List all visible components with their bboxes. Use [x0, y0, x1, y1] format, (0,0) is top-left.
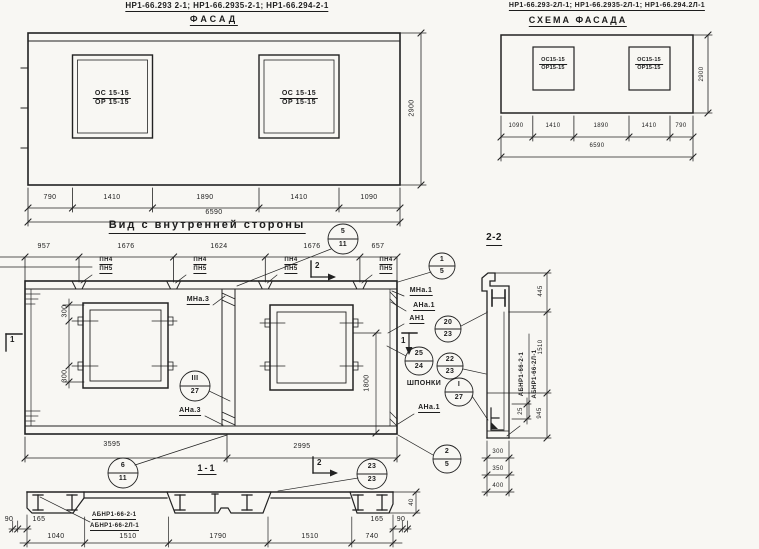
callout-num: 23 [368, 463, 377, 470]
dim-label: 165 [33, 516, 46, 523]
dim-label: 1510 [119, 533, 136, 540]
callout-num: 5 [341, 228, 345, 235]
beam-code-bottom: АБНР1-66-2Л-1 [90, 523, 139, 531]
scheme-codes: НР1-66.293-2Л-1; НР1-66.2935-2Л-1; НР1-6… [509, 2, 705, 11]
callout-num: 2 [445, 448, 449, 455]
dim-label: 1410 [290, 194, 307, 201]
dim-label: 790 [44, 194, 57, 201]
dim-label: 1676 [117, 243, 134, 250]
anchor-label-an1: АН1 [409, 315, 424, 324]
section-marker-1-left: 1 [10, 336, 15, 344]
pn-label: ПН5 [99, 266, 112, 274]
window-mark-bottom: ОР15-15 [541, 65, 564, 71]
dim-label: 1510 [301, 533, 318, 540]
dim-label: 1090 [509, 123, 524, 129]
beam-code-top: АБНР1-66-2-1 [519, 352, 525, 396]
dim-label: 445 [538, 285, 544, 296]
facade-title: ФАСАД [190, 15, 238, 26]
pn-label: ПН4 [379, 257, 392, 265]
anchor-label-ana3: АНа.3 [179, 407, 201, 416]
callout-den: 5 [445, 461, 449, 468]
facade-window2-mark: ОС 15-15 ОР 15-15 [280, 90, 318, 106]
anchor-label-mna1: МНа.1 [410, 287, 433, 296]
callout-num: 20 [444, 319, 453, 326]
scheme-linework [498, 32, 712, 161]
linework-layer [0, 0, 759, 549]
dim-label: 1624 [210, 243, 227, 250]
dim-total: 6590 [205, 209, 222, 216]
dim-label: 1410 [642, 123, 657, 129]
dim-label: 300 [61, 370, 68, 383]
dim-label: 1676 [303, 243, 320, 250]
dim-label: 1790 [209, 533, 226, 540]
callout-num: III [191, 375, 198, 382]
window-mark-bottom: ОР15-15 [637, 65, 660, 71]
dim-label: 740 [366, 533, 379, 540]
window-mark-bottom: ОР 15-15 [282, 99, 316, 106]
inner-view-title: Вид с внутренней стороны [109, 220, 306, 234]
anchor-label-mna3: МНа.3 [187, 296, 210, 305]
dim-label: 3595 [103, 441, 120, 448]
dim-label: 1890 [594, 123, 609, 129]
scheme-window1-mark: ОС15-15 ОР15-15 [539, 57, 567, 71]
dim-label: 1510 [538, 340, 544, 355]
callout-den: 23 [444, 331, 453, 338]
section-marker-1-right: 1 [401, 337, 406, 345]
dim-label: 657 [372, 243, 385, 250]
dim-label: 25 [518, 407, 524, 414]
pn-label: ПН5 [379, 266, 392, 274]
callout-num: 6 [121, 462, 125, 469]
pn-label: ПН4 [284, 257, 297, 265]
dim-label: 400 [492, 483, 503, 489]
dim-label: 1800 [363, 374, 370, 391]
section-1-1-label: 1-1 [197, 464, 216, 475]
dim-label: 90 [397, 516, 406, 523]
dim-label: 300 [492, 449, 503, 455]
window-mark-bottom: ОР 15-15 [95, 99, 129, 106]
pn-label: ПН5 [284, 266, 297, 274]
facade-window1-mark: ОС 15-15 ОР 15-15 [93, 90, 131, 106]
dim-label: 90 [5, 516, 14, 523]
dim-total: 6590 [590, 143, 605, 149]
dim-label: 165 [371, 516, 384, 523]
section-2-2-linework [482, 270, 551, 496]
dim-label: 945 [537, 407, 543, 418]
dim-label: 350 [492, 466, 503, 472]
section-marker-2-bottom: 2 [317, 459, 322, 467]
callout-num: 25 [415, 350, 424, 357]
dim-label: 2995 [293, 443, 310, 450]
dim-label: 1890 [196, 194, 213, 201]
callout-den: 11 [119, 475, 127, 482]
callout-den: 23 [368, 476, 377, 483]
window-mark-top: ОС 15-15 [93, 90, 131, 99]
callout-den: 11 [339, 241, 347, 248]
callout-den: 27 [455, 394, 464, 401]
dim-label: 1410 [103, 194, 120, 201]
window-mark-top: ОС15-15 [635, 57, 663, 65]
shponki-label: ШПОНКИ [407, 380, 441, 387]
section-2-2-title: 2-2 [486, 233, 502, 246]
dim-label: 957 [38, 243, 51, 250]
scheme-window2-mark: ОС15-15 ОР15-15 [635, 57, 663, 71]
pn-label: ПН5 [193, 266, 206, 274]
callout-den: 23 [446, 368, 455, 375]
anchor-label-ana1: АНа.1 [413, 302, 435, 311]
dim-label: 300 [61, 305, 68, 318]
facade-codes: НР1-66.293 2-1; НР1-66.2935-2-1; НР1-66.… [125, 2, 328, 12]
callout-den: 27 [191, 388, 200, 395]
callout-num: 22 [446, 356, 455, 363]
callout-num: 1 [440, 256, 444, 263]
drawing-sheet: НР1-66.293 2-1; НР1-66.2935-2-1; НР1-66.… [0, 0, 759, 549]
dim-thickness: 40 [409, 498, 415, 505]
beam-code-top: АБНР1-66-2-1 [92, 512, 136, 520]
inner-view-linework [0, 254, 417, 477]
anchor-label-ana1-lower: АНа.1 [418, 404, 440, 413]
dim-height: 2900 [408, 99, 415, 116]
window-mark-top: ОС 15-15 [280, 90, 318, 99]
dim-label: 1410 [546, 123, 561, 129]
beam-code-bottom: АБНР1-66-2Л-1 [532, 349, 538, 398]
callout-circles [108, 224, 488, 491]
dim-label: 1040 [47, 533, 64, 540]
window-mark-top: ОС15-15 [539, 57, 567, 65]
dim-label: 1090 [360, 194, 377, 201]
dim-height: 2900 [699, 67, 705, 82]
pn-label: ПН4 [193, 257, 206, 265]
pn-label: ПН4 [99, 257, 112, 265]
callout-num: I [458, 381, 460, 388]
dim-label: 790 [675, 123, 686, 129]
callout-den: 24 [415, 363, 424, 370]
callout-den: 5 [440, 268, 444, 275]
section-marker-2-top: 2 [315, 262, 320, 270]
scheme-title: СХЕМА ФАСАДА [529, 16, 627, 27]
